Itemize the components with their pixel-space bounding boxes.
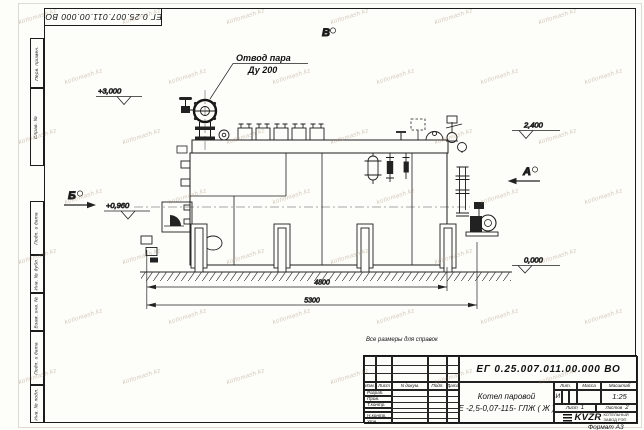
change-col (364, 356, 376, 382)
elevation-0960: +0,960 (104, 201, 150, 219)
elevation-3000-text: +3,000 (98, 87, 122, 96)
sheets-label: Листов (605, 405, 622, 410)
safety-valve-dome (423, 132, 446, 141)
scale-header: Масштаб (601, 382, 638, 390)
feed-pump (466, 202, 498, 236)
tb-header-list: Лист (376, 382, 392, 390)
boiler-body (177, 140, 448, 265)
marker-b-letter: Б (68, 190, 76, 202)
hatch-box (238, 124, 324, 140)
grid-line (392, 396, 459, 397)
title-block: Изм. Лист N докум. Подп. Дата Разраб. Пр… (363, 355, 637, 423)
doc-number: ЕГ 0.25.007.011.00.000 ВО (459, 356, 638, 382)
grid-line (364, 365, 459, 366)
elevation-2400-text: 2,400 (523, 121, 544, 130)
lit-cell-3 (569, 390, 577, 405)
tb-row-utv: Утв. (364, 418, 392, 424)
elevation-0000: 0,000 (512, 256, 560, 274)
grid-line (364, 373, 459, 374)
scale-value: 1:25 (601, 390, 638, 405)
gauge-siphon (458, 143, 467, 154)
change-col (428, 356, 447, 382)
door-swing-sector (170, 215, 181, 226)
product-name-line1: Котел паровой (478, 391, 535, 403)
right-top-fittings (396, 116, 467, 153)
lit-header: Лит. (554, 382, 577, 390)
logo-sub-line2: ЗАВОД РЭП (604, 418, 629, 423)
tb-header-data: Дата (447, 382, 459, 390)
grid-line (392, 418, 459, 419)
format-note: Формат А3 (588, 424, 624, 430)
ash-door (150, 258, 158, 263)
tb-header-dokum: N докум. (392, 382, 428, 390)
view-marker-v: В (322, 27, 336, 39)
elevation-0000-text: 0,000 (524, 256, 544, 265)
reference-note: Все размеры для справок (366, 337, 438, 343)
grid-line (392, 412, 459, 413)
sheet-label: Лист (566, 405, 578, 410)
steam-outlet-valve (179, 97, 216, 140)
elevation-0960-text: +0,960 (106, 201, 130, 210)
product-name-line2: Е -2,5-0,07-115- ГЛЖ ( Ж ) (459, 403, 554, 415)
change-col (447, 356, 459, 382)
marker-v-letter: В (322, 27, 330, 39)
lever-safety-valve (446, 116, 462, 143)
company-logo-cell: KVZR КОТЕЛЬНЫЙ ЗАВОД РЭП (554, 412, 638, 425)
grid-line (392, 402, 459, 403)
steam-outlet-callout: Отвод пара Ду 200 (210, 53, 308, 99)
burner-box (141, 161, 192, 263)
tb-header-izm: Изм. (364, 382, 376, 390)
sheets-cell: Листов 2 (596, 404, 638, 412)
logo-subtitle: КОТЕЛЬНЫЙ ЗАВОД РЭП (604, 413, 629, 422)
dim-4800-text: 4800 (314, 280, 330, 287)
sheet-value: 1 (581, 405, 584, 411)
change-col (376, 356, 392, 382)
logo-bars-icon (563, 414, 572, 422)
sheet-cell: Лист 1 (554, 404, 596, 412)
view-marker-b: Б (64, 190, 96, 208)
mass-value (577, 390, 601, 405)
water-level-gauges (365, 153, 410, 184)
view-marker-a: А (508, 166, 541, 184)
product-name: Котел паровой Е -2,5-0,07-115- ГЛЖ ( Ж ) (459, 382, 554, 424)
company-logo: KVZR КОТЕЛЬНЫЙ ЗАВОД РЭП (563, 412, 628, 423)
sheets-value: 2 (625, 405, 628, 411)
hidden-component (411, 119, 425, 130)
dim-5300-text: 5300 (304, 298, 320, 305)
top-hatches (219, 124, 324, 140)
marker-a-letter: А (522, 166, 531, 178)
callout-line1: Отвод пара (236, 53, 291, 63)
tb-header-podp: Подп. (428, 382, 447, 390)
lit-cell-2 (562, 390, 570, 405)
mass-header: Масса (577, 382, 601, 390)
callout-line2: Ду 200 (247, 65, 277, 75)
downcomer-and-pump (456, 167, 499, 236)
elevation-3000: +3,000 (96, 87, 142, 105)
logo-text: KVZR (574, 412, 601, 423)
lit-value: И (554, 390, 562, 405)
drawing-sheet: ЕГ 0.25.007.011.00.000 ВО Перв. примен. … (0, 0, 644, 430)
handwheel-valve (179, 97, 194, 113)
elevation-2400: 2,400 (512, 121, 560, 139)
change-col (392, 356, 428, 382)
grid-line (392, 408, 459, 409)
